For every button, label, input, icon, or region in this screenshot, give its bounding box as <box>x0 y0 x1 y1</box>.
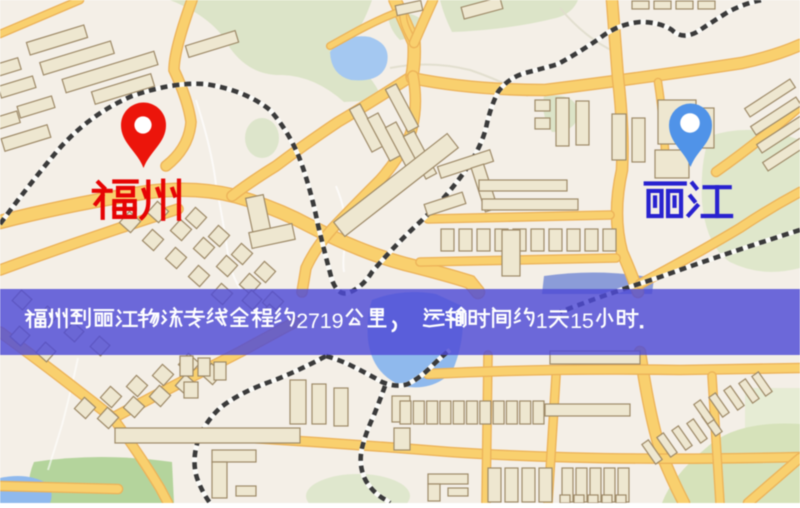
svg-text:7: 7 <box>308 309 320 333</box>
svg-text:1: 1 <box>570 309 582 333</box>
svg-text:9: 9 <box>332 309 344 333</box>
svg-text:5: 5 <box>582 309 594 333</box>
svg-text:1: 1 <box>536 309 548 333</box>
svg-text:2: 2 <box>296 309 308 333</box>
svg-text:1: 1 <box>320 309 332 333</box>
